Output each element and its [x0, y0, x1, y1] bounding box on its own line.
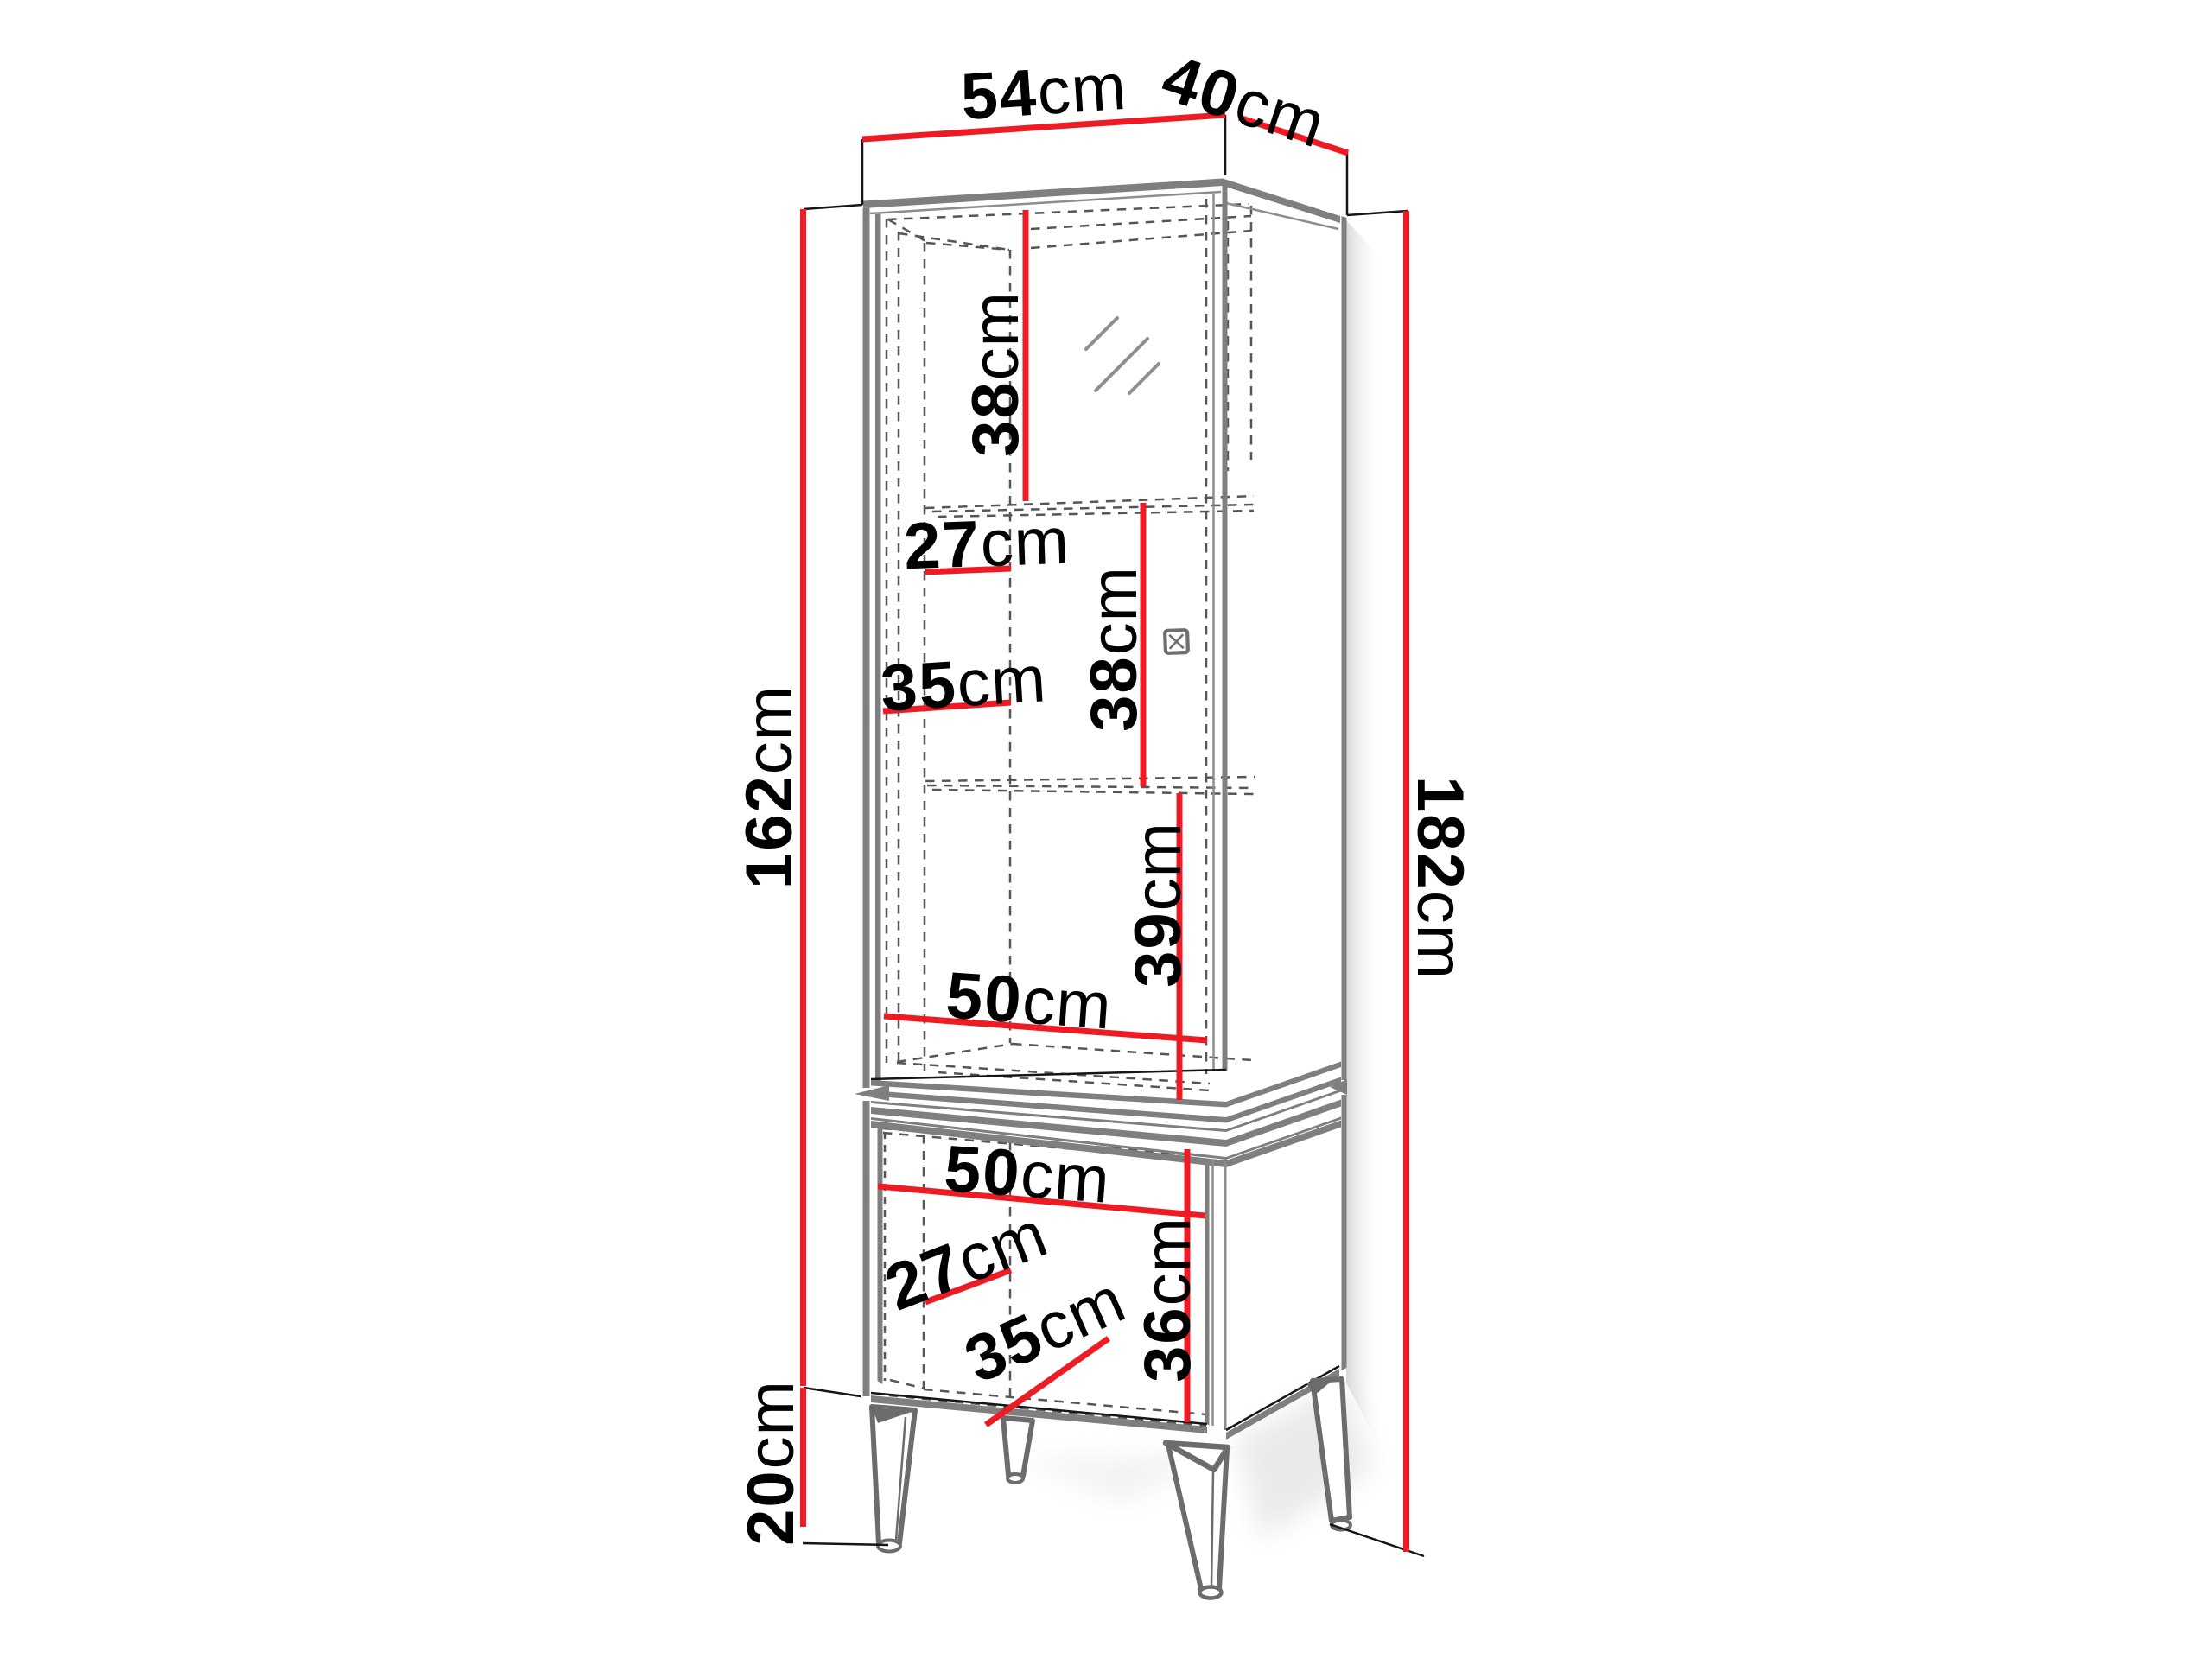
svg-text:38cm: 38cm [1077, 566, 1151, 732]
svg-text:27cm: 27cm [903, 505, 1071, 584]
svg-text:35cm: 35cm [879, 642, 1049, 726]
svg-text:36cm: 36cm [1131, 1217, 1205, 1382]
svg-text:38cm: 38cm [959, 291, 1033, 457]
svg-text:39cm: 39cm [1122, 822, 1195, 988]
svg-text:20cm: 20cm [734, 1380, 808, 1546]
svg-text:54cm: 54cm [959, 50, 1129, 135]
svg-text:50cm: 50cm [944, 958, 1114, 1043]
svg-text:162cm: 162cm [733, 685, 806, 889]
svg-text:182cm: 182cm [1403, 776, 1477, 980]
